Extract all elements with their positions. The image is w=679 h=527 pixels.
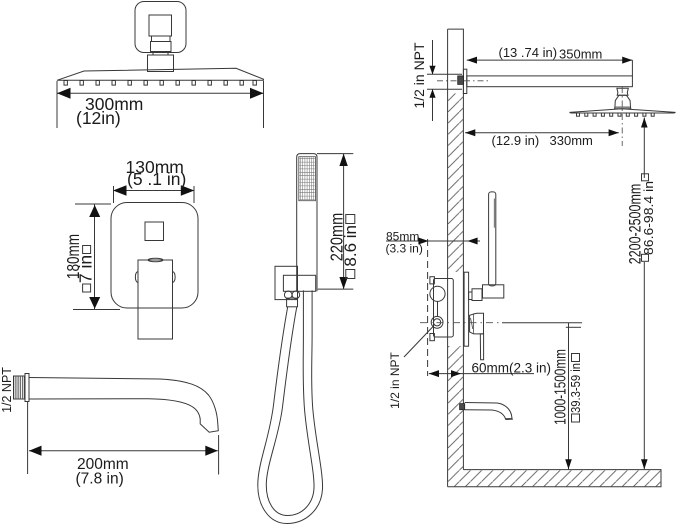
svg-text:(13 .74 in): (13 .74 in) [499, 45, 558, 60]
svg-text:60mm(2.3 in): 60mm(2.3 in) [472, 361, 552, 376]
svg-text:(5 .1 in): (5 .1 in) [127, 169, 186, 189]
svg-text:1/2 NPT: 1/2 NPT [0, 367, 14, 413]
svg-text:(12in): (12in) [76, 108, 121, 128]
svg-text:350mm: 350mm [559, 47, 602, 62]
svg-text:39.3-59 in: 39.3-59 in [569, 363, 583, 413]
svg-text:1/2 in NPT: 1/2 in NPT [388, 351, 402, 408]
svg-text:7 in: 7 in [76, 255, 96, 283]
svg-text:(3.3 in): (3.3 in) [386, 242, 423, 256]
svg-text:1000-1500mm: 1000-1500mm [553, 349, 570, 425]
svg-text:8.6 in: 8.6 in [341, 225, 360, 267]
svg-text:330mm: 330mm [550, 133, 593, 148]
svg-text:(12.9 in): (12.9 in) [492, 133, 540, 148]
svg-text:(7.8 in): (7.8 in) [76, 471, 124, 488]
svg-text:1/2 in NPT: 1/2 in NPT [411, 42, 427, 109]
svg-text:86.6-98.4 in: 86.6-98.4 in [641, 181, 656, 255]
